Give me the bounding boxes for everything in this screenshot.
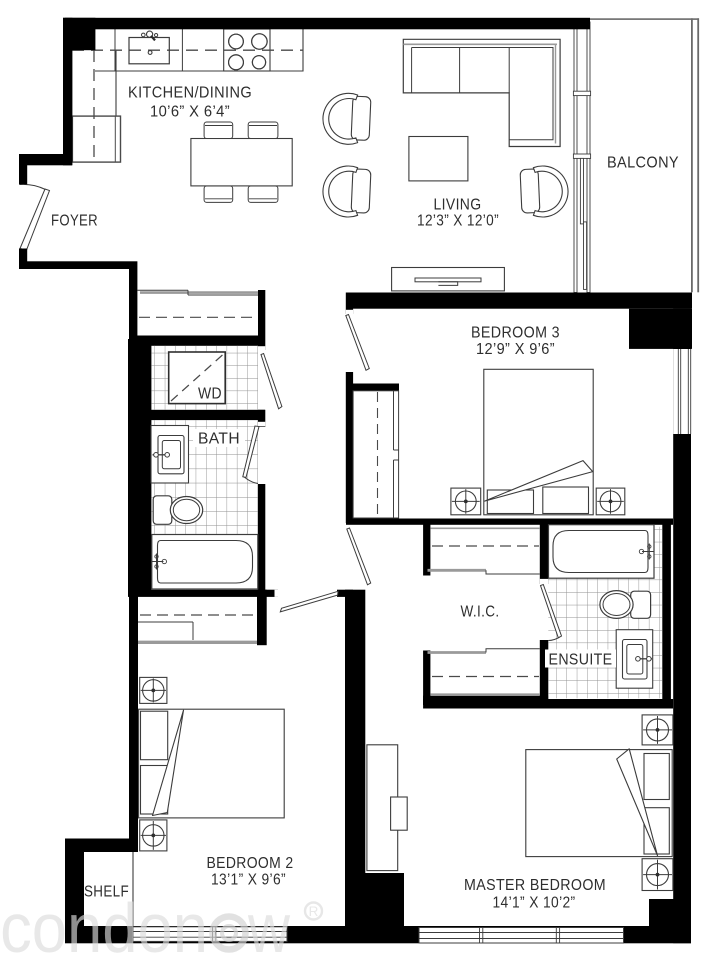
svg-text:LIVING: LIVING <box>434 197 482 214</box>
svg-text:13’1” X 9’6”: 13’1” X 9’6” <box>211 872 286 889</box>
svg-text:KITCHEN/DINING: KITCHEN/DINING <box>128 85 252 102</box>
svg-text:WD: WD <box>198 386 222 403</box>
svg-text:BEDROOM 3: BEDROOM 3 <box>471 325 560 342</box>
svg-text:lcondon: lcondon <box>0 889 208 956</box>
svg-text:w: w <box>247 889 290 956</box>
svg-text:BALCONY: BALCONY <box>607 155 679 172</box>
svg-text:BEDROOM 2: BEDROOM 2 <box>207 855 294 872</box>
svg-text:10’6” X 6’4”: 10’6” X 6’4” <box>150 104 230 121</box>
svg-text:12’9” X 9’6”: 12’9” X 9’6” <box>476 341 555 358</box>
svg-text:12’3” X 12’0”: 12’3” X 12’0” <box>417 213 499 230</box>
svg-text:FOYER: FOYER <box>51 213 98 230</box>
svg-text:14’1” X 10’2”: 14’1” X 10’2” <box>493 895 576 912</box>
svg-text:BATH: BATH <box>198 430 240 447</box>
svg-text:ENSUITE: ENSUITE <box>549 651 613 668</box>
svg-text:MASTER BEDROOM: MASTER BEDROOM <box>464 877 606 894</box>
svg-text:W.I.C.: W.I.C. <box>461 604 500 621</box>
svg-text:R: R <box>309 904 319 919</box>
